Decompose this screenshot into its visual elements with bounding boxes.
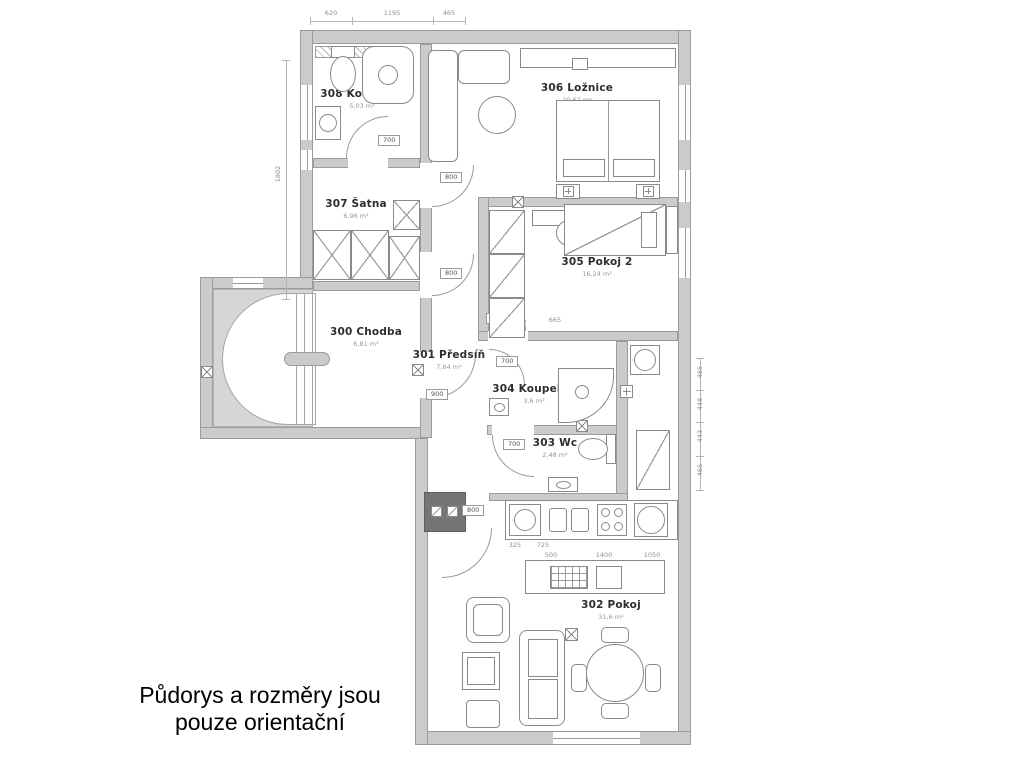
room-area: 6,81 m² xyxy=(311,340,421,348)
wall-307-300 xyxy=(313,281,420,291)
disclaimer-caption: Půdorys a rozměry jsou pouze orientační xyxy=(120,682,400,736)
wardrobe xyxy=(393,200,420,230)
wall-junction-marker xyxy=(201,366,213,378)
dimension-label: 465 xyxy=(696,458,704,482)
appliance-drum xyxy=(514,509,536,531)
dimension-tick xyxy=(696,422,704,423)
wall-stairbay-left xyxy=(200,277,213,439)
basin-bowl xyxy=(494,403,505,412)
door-width-tag: 800 xyxy=(440,172,462,183)
room-label-300: 300 Chodba 6,81 m² xyxy=(311,326,421,348)
sofa-cushion xyxy=(528,639,558,677)
wardrobe xyxy=(489,254,525,298)
small-sink xyxy=(548,477,578,492)
room-name: 300 Chodba xyxy=(311,326,421,338)
flue-square xyxy=(431,506,442,517)
floorplan-screenshot: 700 800 800 800 900 700 700 800 308 Koup… xyxy=(0,0,1024,771)
wall-left-lower xyxy=(415,438,428,745)
dimension-line xyxy=(310,21,465,22)
lamp-marker xyxy=(563,186,574,197)
door-opening xyxy=(420,252,432,298)
sink-basin xyxy=(378,65,398,85)
dining-chair xyxy=(571,664,587,692)
shower-head xyxy=(575,385,589,399)
door-opening xyxy=(492,425,534,435)
dimension-label: 500 xyxy=(536,551,566,559)
door-width-tag: 800 xyxy=(462,505,484,516)
door-opening xyxy=(348,158,388,168)
double-bed xyxy=(556,100,660,182)
shower xyxy=(558,368,614,423)
bed-centerline xyxy=(608,101,609,181)
dimension-line xyxy=(286,60,287,300)
dimension-tick xyxy=(310,17,311,25)
basin-bowl xyxy=(556,481,571,489)
nightstand xyxy=(556,184,580,199)
dimension-label: 448 xyxy=(696,392,704,416)
room-name: 301 Předsíň xyxy=(394,349,504,361)
dimension-tick xyxy=(696,358,704,359)
pillow xyxy=(641,212,657,248)
dimension-label: 325 xyxy=(500,541,530,549)
sink-basin xyxy=(571,508,589,532)
caption-line-2: pouze orientační xyxy=(120,709,400,736)
wall-junction-marker xyxy=(512,196,524,208)
burner xyxy=(614,508,623,517)
door-width-tag: 800 xyxy=(440,268,462,279)
wardrobe xyxy=(489,210,525,254)
caption-line-1: Půdorys a rozměry jsou xyxy=(120,682,400,709)
washer-drum xyxy=(634,349,656,371)
dimension-label: 725 xyxy=(528,541,558,549)
wardrobe xyxy=(351,230,389,280)
room-area: 7,64 m² xyxy=(394,363,504,371)
stair-handrail xyxy=(284,352,330,366)
stove-grid xyxy=(550,566,588,589)
nightstand xyxy=(666,206,678,254)
dimension-label: 465 xyxy=(696,360,704,384)
sofa-cushion xyxy=(528,679,558,719)
dimension-tick xyxy=(352,17,353,25)
window xyxy=(678,170,691,202)
door-arc xyxy=(442,528,492,578)
window xyxy=(553,731,640,745)
burner xyxy=(614,522,623,531)
door-width-tag: 900 xyxy=(426,389,448,400)
armchair-seat xyxy=(473,604,503,636)
room-name: 302 Pokoj xyxy=(556,599,666,611)
dimension-tick xyxy=(696,390,704,391)
window xyxy=(233,277,263,289)
lamp-marker xyxy=(643,186,654,197)
wardrobe xyxy=(389,236,420,280)
wardrobe xyxy=(313,230,351,280)
dimension-tick xyxy=(696,456,704,457)
toilet-bowl xyxy=(578,438,608,460)
dimension-label: 620 xyxy=(311,9,351,17)
room-label-305: 305 Pokoj 2 16,24 m² xyxy=(542,256,652,278)
sofa-back xyxy=(428,50,458,162)
room-label-301: 301 Předsíň 7,64 m² xyxy=(394,349,504,371)
wardrobe xyxy=(489,298,525,338)
wardrobe-shelf xyxy=(520,48,676,68)
washing-machine xyxy=(315,106,341,140)
washer-drum xyxy=(319,114,337,132)
room-label-302: 302 Pokoj 31,6 m² xyxy=(556,599,666,621)
pillow xyxy=(613,159,655,177)
round-table xyxy=(478,96,516,134)
window xyxy=(678,228,691,278)
fridge xyxy=(634,503,668,537)
flue-square xyxy=(447,506,458,517)
fridge-circle xyxy=(637,506,665,534)
wall-junction-marker xyxy=(576,420,588,432)
wall-stairbay-bottom xyxy=(200,427,428,439)
bathroom-sink xyxy=(362,46,414,104)
washing-machine xyxy=(630,345,660,375)
dining-chair xyxy=(601,703,629,719)
cooktop xyxy=(597,504,627,536)
wall-utility-left xyxy=(616,341,628,495)
burner xyxy=(601,508,610,517)
toilet-bowl xyxy=(330,56,356,92)
sofa xyxy=(519,630,565,726)
pillow xyxy=(563,159,605,177)
dining-table xyxy=(586,644,644,702)
window xyxy=(300,150,313,170)
dimension-tick xyxy=(433,17,434,25)
door-width-tag: 700 xyxy=(378,135,400,146)
sink-basin xyxy=(549,508,567,532)
dimension-label: 1400 xyxy=(584,551,624,559)
window xyxy=(678,85,691,140)
dimension-label: 1050 xyxy=(632,551,672,559)
burner xyxy=(601,522,610,531)
coffee-table xyxy=(462,652,500,690)
dimension-tick xyxy=(282,299,290,300)
dishwasher xyxy=(509,504,541,536)
armchair xyxy=(466,597,510,643)
dimension-label: 1195 xyxy=(372,9,412,17)
table-top xyxy=(467,657,495,685)
dining-chair xyxy=(645,664,661,692)
dimension-label: 443 xyxy=(696,424,704,448)
kitchen-island xyxy=(525,560,665,594)
room-name: 306 Ložnice xyxy=(522,82,632,94)
nightstand xyxy=(636,184,660,199)
wall-top xyxy=(300,30,691,44)
room-name: 305 Pokoj 2 xyxy=(542,256,652,268)
door-opening xyxy=(420,163,432,208)
shelf-handle xyxy=(572,58,588,70)
dimension-tick xyxy=(465,17,466,25)
utility-cabinet xyxy=(636,430,670,490)
dimension-label: 465 xyxy=(429,9,469,17)
room-area: 16,24 m² xyxy=(542,270,652,278)
dimension-tick xyxy=(282,60,290,61)
dimension-label: 1802 xyxy=(274,154,282,194)
side-table xyxy=(466,700,500,728)
island-cabinet xyxy=(596,566,622,589)
dimension-label: 665 xyxy=(540,316,570,324)
single-bed xyxy=(564,204,666,256)
sofa-seat xyxy=(458,50,510,84)
dimension-tick xyxy=(696,490,704,491)
plant-marker xyxy=(565,628,578,641)
room-area: 31,6 m² xyxy=(556,613,666,621)
dining-chair xyxy=(601,627,629,643)
washbasin xyxy=(489,398,509,416)
valve-marker xyxy=(620,385,633,398)
